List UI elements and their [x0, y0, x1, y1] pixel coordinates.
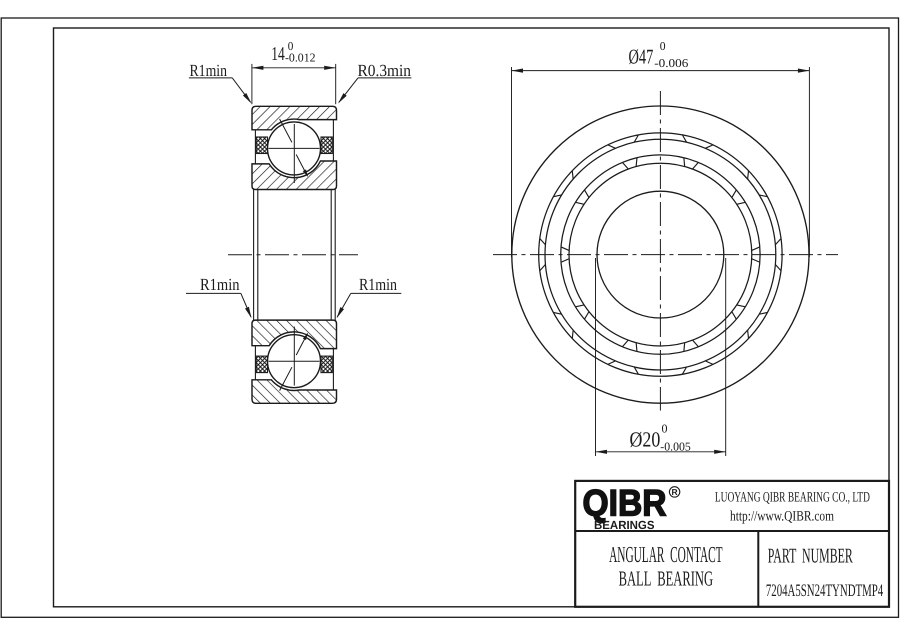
svg-text:Ø47: Ø47 [629, 44, 654, 68]
svg-text:BALL BEARING: BALL BEARING [619, 567, 714, 591]
svg-text:BEARINGS: BEARINGS [594, 518, 655, 532]
svg-text:Ø20: Ø20 [630, 428, 661, 452]
svg-text:-0.006: -0.006 [654, 56, 688, 70]
svg-text:R1min: R1min [200, 275, 240, 294]
svg-text:http://www.QIBR.com: http://www.QIBR.com [730, 509, 834, 525]
svg-text:PART NUMBER: PART NUMBER [768, 544, 853, 568]
svg-text:14: 14 [271, 44, 285, 65]
svg-text:R: R [672, 487, 678, 497]
svg-text:R1min: R1min [359, 275, 397, 294]
svg-text:0: 0 [660, 39, 666, 53]
svg-text:ANGULAR CONTACT: ANGULAR CONTACT [609, 542, 723, 567]
svg-text:R1min: R1min [190, 61, 228, 80]
svg-text:7204A5SN24TYNDTMP4: 7204A5SN24TYNDTMP4 [766, 580, 883, 600]
svg-text:-0.012: -0.012 [285, 51, 316, 65]
svg-text:0: 0 [662, 422, 668, 436]
svg-text:LUOYANG QIBR BEARING CO., LTD: LUOYANG QIBR BEARING CO., LTD [715, 490, 870, 506]
svg-text:R0.3min: R0.3min [358, 61, 412, 80]
svg-text:-0.005: -0.005 [660, 439, 691, 453]
